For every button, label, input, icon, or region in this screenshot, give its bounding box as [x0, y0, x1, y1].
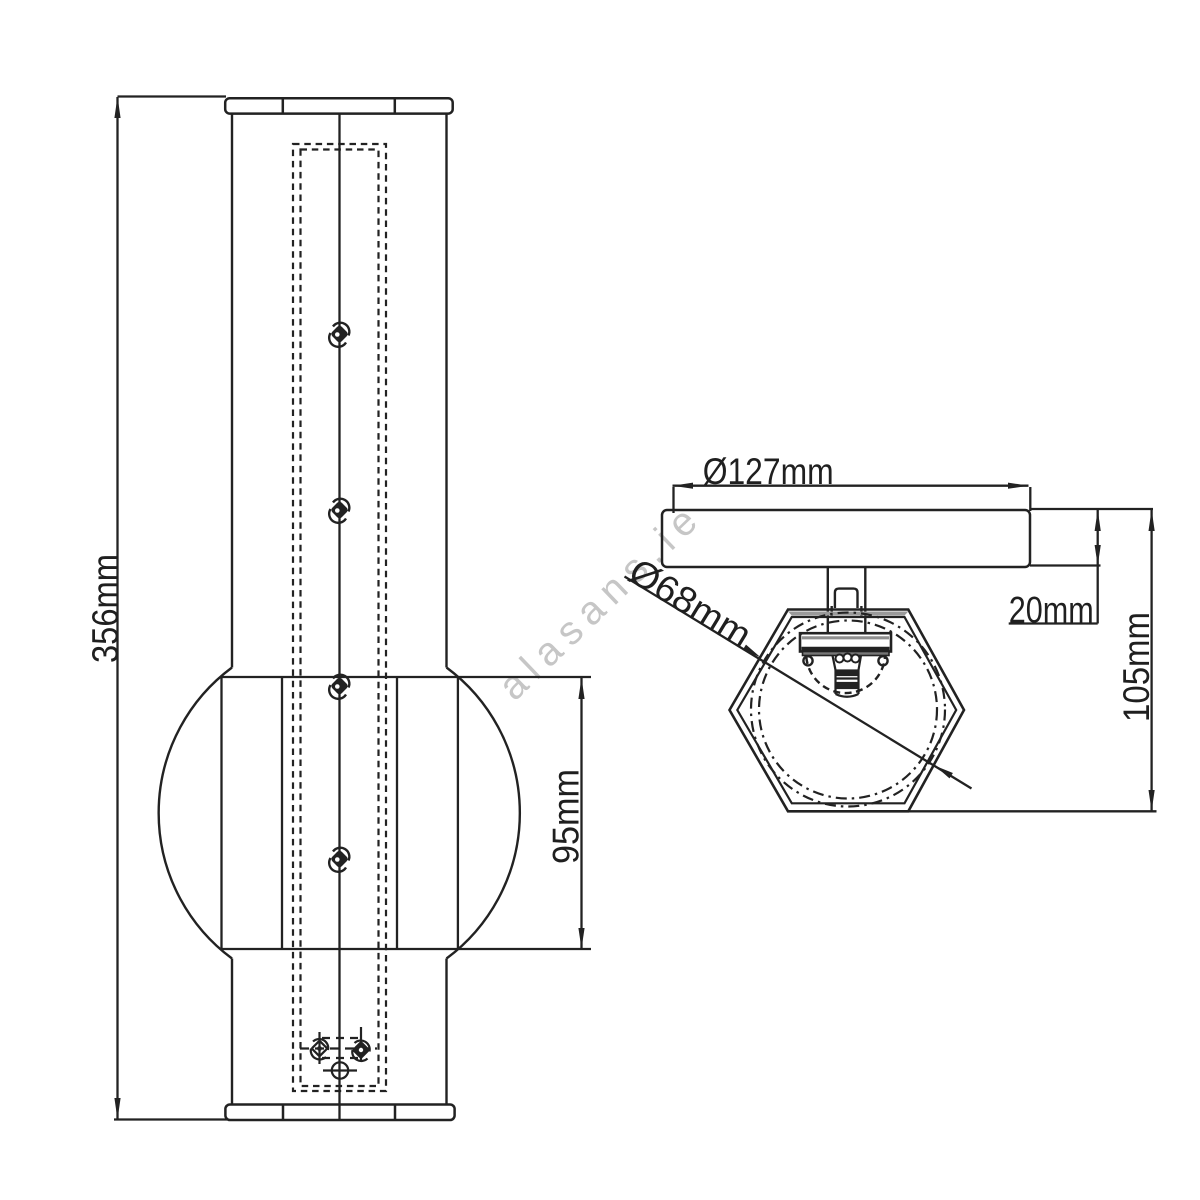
svg-text:105mm: 105mm [1116, 612, 1157, 722]
svg-text:20mm: 20mm [1009, 590, 1094, 631]
svg-text:95mm: 95mm [546, 769, 587, 864]
svg-text:Ø127mm: Ø127mm [703, 451, 834, 492]
svg-text:356mm: 356mm [85, 554, 126, 663]
